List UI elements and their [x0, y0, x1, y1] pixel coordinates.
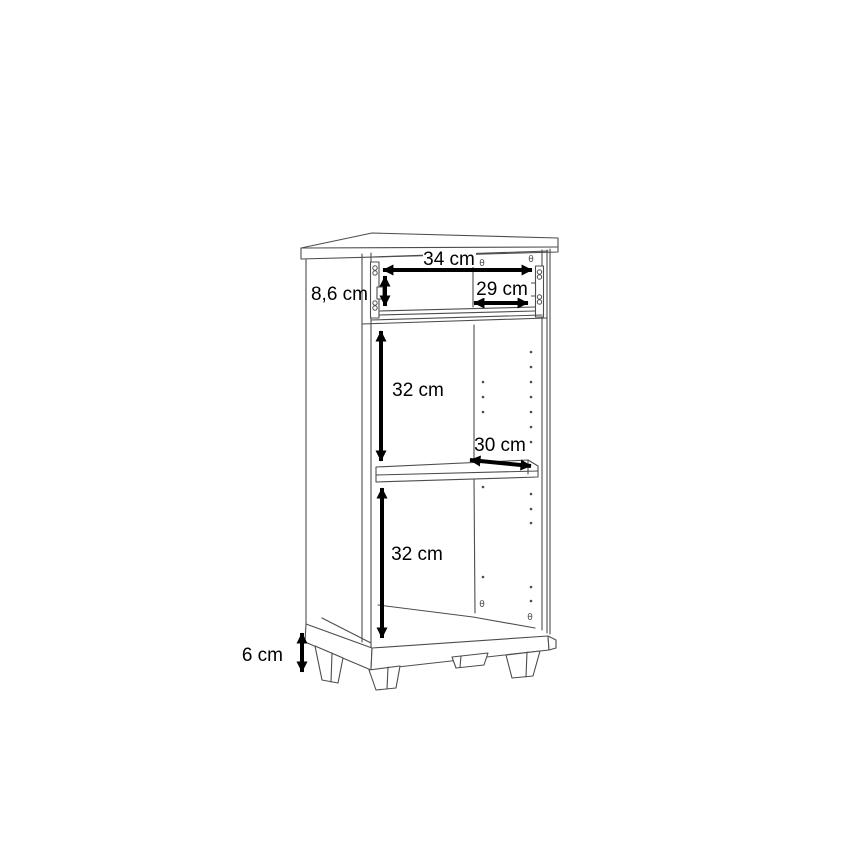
dimension-label-29cm: 29 cm [476, 279, 528, 300]
dimension-label-34cm: 34 cm [423, 249, 475, 270]
dimension-label-32cm-lower: 32 cm [391, 544, 443, 565]
screenshot-canvas: θ θ θ θ [0, 0, 868, 868]
dimension-lower-compartment-height: 32 cm [382, 488, 443, 638]
cam-lock-icon: θ [527, 613, 533, 623]
dimension-label-32cm-upper: 32 cm [392, 380, 444, 401]
drawer-runner-right [530, 266, 544, 317]
dimension-drawer-inner-width: 29 cm [474, 279, 531, 303]
dimension-upper-compartment-height: 32 cm [381, 331, 444, 461]
cam-lock-icon: θ [528, 255, 534, 265]
back-corner-seam [474, 479, 475, 613]
screw-icon [537, 295, 541, 299]
screw-icon [537, 275, 541, 279]
screw-icon [537, 270, 541, 274]
screw-icon [373, 306, 377, 310]
dimension-label-6cm: 6 cm [242, 645, 283, 666]
cam-lock-icon: θ [479, 259, 485, 269]
dimension-feet-height: 6 cm [242, 633, 302, 672]
cabinet-dimension-diagram: θ θ θ θ [0, 0, 868, 868]
cam-lock-icon: θ [479, 600, 485, 610]
screw-icon [537, 300, 541, 304]
screw-icon [373, 266, 377, 270]
dimension-label-30cm: 30 cm [474, 435, 526, 456]
screw-icon [373, 271, 377, 275]
drawer-runner-left [371, 262, 384, 318]
foot-front-right [506, 651, 540, 678]
bottom-panel-floor [378, 605, 535, 628]
foot-front-left [369, 666, 400, 690]
drawer-bottom-panel [362, 307, 547, 324]
screw-icon [373, 301, 377, 305]
dimension-label-8-6cm: 8,6 cm [311, 284, 368, 305]
